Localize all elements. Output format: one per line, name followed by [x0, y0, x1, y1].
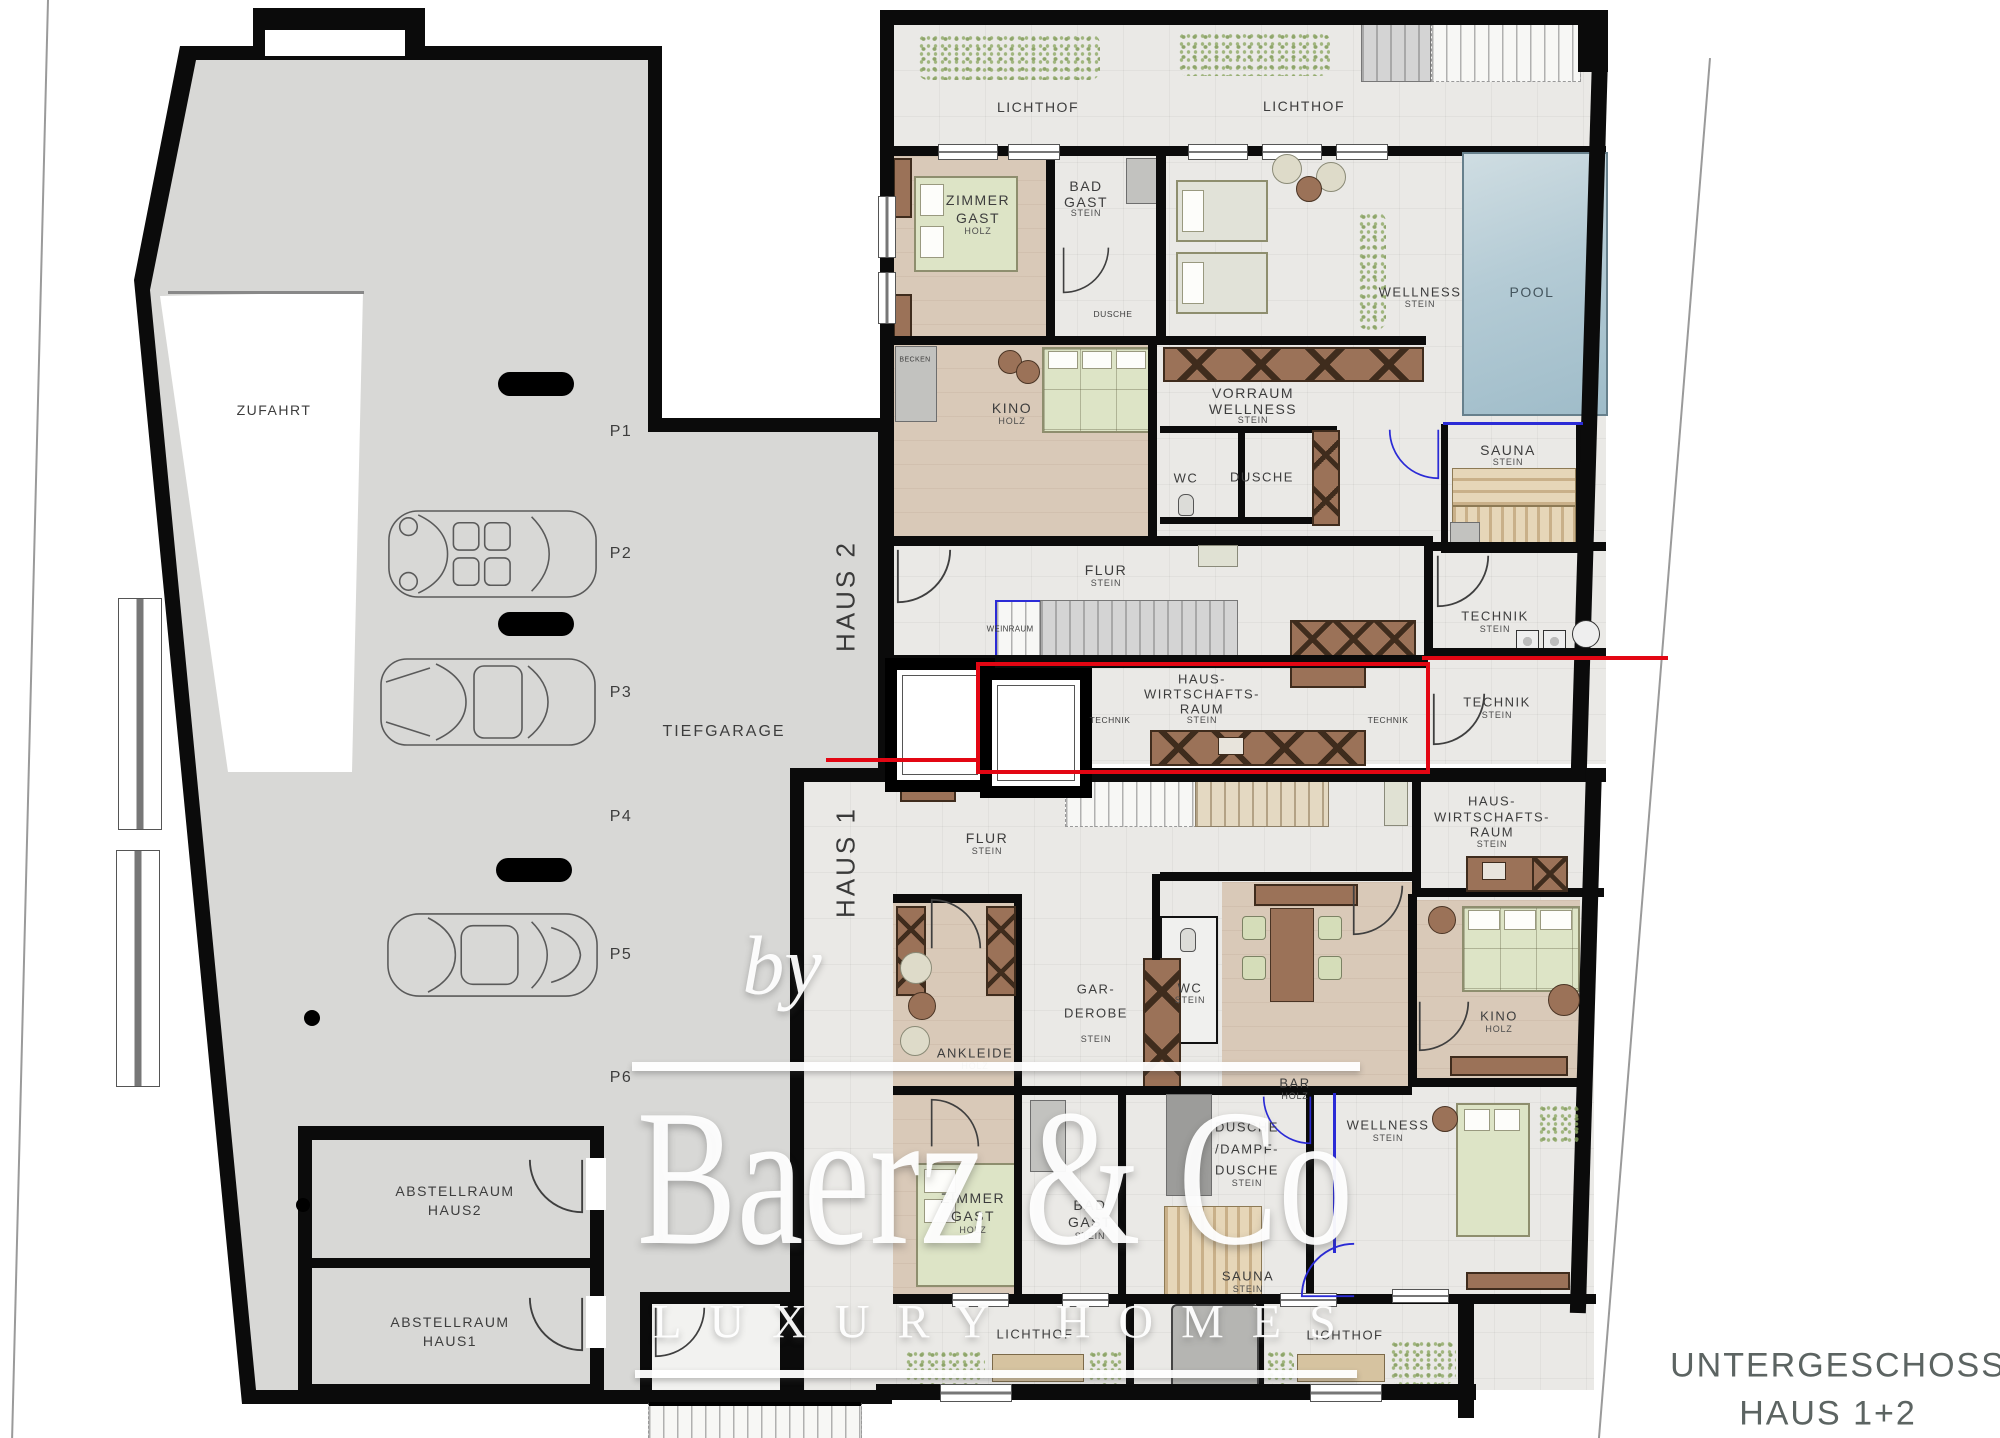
wall: [1156, 336, 1426, 345]
material-label: HOLZ: [964, 226, 991, 236]
window: [1188, 144, 1248, 160]
property-line-left: [11, 0, 48, 1438]
window: [940, 1384, 1012, 1402]
exterior-stairs-dashed: [1431, 18, 1581, 82]
property-line-right: [1598, 58, 1711, 1438]
room-label-wellness-h2: WELLNESS: [1379, 285, 1462, 300]
window: [1310, 1384, 1382, 1402]
stairs: [1040, 600, 1238, 658]
parking-label-p2: P2: [610, 545, 633, 563]
plants: [1178, 32, 1330, 76]
stool: [1432, 1106, 1458, 1132]
room-label-wc-h1: WC: [1178, 981, 1203, 996]
chair: [1272, 154, 1302, 184]
watermark-tagline: LUXURY HOMES: [652, 1295, 1364, 1350]
door-arc: [930, 898, 982, 950]
annotation-red-line: [826, 758, 978, 762]
room-label-vorraum: VORRAUM: [1212, 385, 1294, 401]
plants: [1390, 1340, 1456, 1384]
car-sedan-icon: [372, 652, 604, 752]
wall: [893, 536, 1433, 546]
material-label: STEIN: [1480, 624, 1511, 634]
chair: [1318, 916, 1342, 940]
unit-label-haus2: HAUS 2: [831, 540, 862, 652]
room-label-dusche-klein: DUSCHE: [1094, 309, 1133, 319]
window: [878, 196, 896, 258]
bay-divider: [498, 612, 574, 636]
counter: [1254, 884, 1358, 906]
door-arc-blue: [1388, 428, 1440, 480]
room-label-weinraum: WEINRAUM: [987, 625, 1034, 634]
wall: [1424, 542, 1433, 654]
room-label-flur-h2: FLUR: [1085, 562, 1128, 578]
room-label-becken: BECKEN: [899, 357, 930, 364]
room-label-garderobe: GAR-: [1077, 982, 1116, 997]
parking-label-p6: P6: [610, 1069, 633, 1087]
bed: [1456, 1103, 1530, 1237]
door-arc: [1418, 1000, 1470, 1052]
material-label: STEIN: [1071, 208, 1102, 218]
wall: [1148, 336, 1157, 542]
window: [1392, 1289, 1449, 1303]
bay-divider: [496, 858, 572, 882]
room-label-wc-h2: WC: [1174, 471, 1199, 486]
daybed: [1176, 180, 1268, 242]
floorplan-canvas: ZUFAHRT: [0, 0, 2000, 1438]
door-arc: [528, 1158, 584, 1214]
material-label: STEIN: [1238, 415, 1269, 425]
room-label-hwr-h1-3: RAUM: [1470, 825, 1514, 840]
room-label-abstellraum1-sub: HAUS1: [423, 1333, 477, 1349]
sauna-glass-wall: [1443, 422, 1583, 425]
material-label: STEIN: [1405, 299, 1436, 309]
stool: [908, 992, 936, 1020]
car-sports-icon: [385, 905, 600, 1005]
material-label: HOLZ: [998, 416, 1025, 426]
material-label: STEIN: [972, 846, 1003, 856]
material-label: STEIN: [1081, 1034, 1112, 1044]
stairs: [648, 1402, 862, 1438]
zufahrt-gate: [168, 291, 364, 294]
room-label-ankleide: ANKLEIDE: [937, 1046, 1013, 1061]
wall: [1160, 872, 1412, 881]
daybed: [1176, 252, 1268, 314]
wall: [893, 336, 1156, 345]
hatch-box: [1384, 778, 1408, 826]
room-label-zufahrt: ZUFAHRT: [237, 402, 312, 418]
hatch-box: [1198, 545, 1238, 567]
material-label: STEIN: [1477, 839, 1508, 849]
chair: [900, 952, 932, 984]
plants: [1088, 1350, 1124, 1384]
bar-table: [1270, 908, 1314, 1002]
toilet-icon: [1178, 494, 1194, 516]
boiler: [1572, 620, 1600, 648]
sheet-title-line1: UNTERGESCHOSS: [1670, 1347, 2000, 1386]
wall: [1160, 426, 1337, 433]
room-label-abstellraum2: ABSTELLRAUM: [395, 1183, 514, 1199]
plants: [1358, 212, 1386, 330]
room-label-hwr-h1-2: WIRTSCHAFTS-: [1434, 810, 1550, 825]
plants: [918, 34, 1100, 80]
chair: [1318, 956, 1342, 980]
stool: [1548, 984, 1580, 1016]
room-label-hwr-h1: HAUS-: [1468, 794, 1516, 809]
annotation-red-box: [976, 662, 1430, 774]
door-gap: [586, 1158, 606, 1210]
stairs: [1195, 779, 1329, 827]
door-arc: [896, 548, 952, 604]
sideboard: [1450, 1056, 1568, 1076]
garage-top-niche: [265, 30, 405, 56]
stool: [1016, 360, 1040, 384]
door-gap: [586, 1296, 606, 1348]
wall: [1578, 10, 1608, 72]
parking-label-p1: P1: [610, 423, 633, 441]
room-label-flur-h1: FLUR: [966, 830, 1009, 846]
chair: [1242, 956, 1266, 980]
unit-label-haus1: HAUS 1: [831, 806, 862, 918]
room-label-kino-h2: KINO: [992, 400, 1032, 416]
room-label-technik-h2: TECHNIK: [1461, 609, 1529, 624]
plants: [905, 1350, 985, 1384]
window: [938, 144, 998, 160]
watermark-by: by: [742, 918, 821, 1015]
sheet-title-line2: HAUS 1+2: [1739, 1395, 1917, 1434]
wall: [1046, 152, 1055, 342]
shower-tray: [1126, 158, 1158, 204]
window: [116, 850, 160, 1087]
room-label-zimmer-gast-h2-2: GAST: [956, 210, 1000, 226]
room-label-dusche-h2: DUSCHE: [1230, 470, 1294, 485]
room-label-abstellraum2-sub: HAUS2: [428, 1202, 482, 1218]
room-label-abstellraum1: ABSTELLRAUM: [390, 1314, 509, 1330]
exterior-stairs: [1361, 18, 1431, 82]
door-arc: [1062, 246, 1110, 294]
x-cabinet-tower: [1312, 430, 1340, 526]
sauna-bench: [1452, 468, 1576, 506]
sink: [1482, 862, 1506, 880]
annotation-red-line: [1422, 656, 1668, 660]
door-arc: [1352, 884, 1404, 936]
sideboard: [1466, 1272, 1570, 1290]
stool: [1428, 906, 1456, 934]
toilet-icon: [1180, 928, 1196, 952]
plants: [1266, 1350, 1294, 1384]
room-label-tiefgarage: TIEFGARAGE: [662, 723, 785, 741]
wall: [1412, 768, 1421, 896]
plants: [1538, 1104, 1580, 1146]
room-label-pool: POOL: [1510, 284, 1555, 300]
window: [1008, 144, 1060, 160]
room-label-garderobe-2: DEROBE: [1064, 1006, 1128, 1021]
x-cabinet-row: [1163, 347, 1424, 382]
material-label: STEIN: [1175, 995, 1206, 1005]
door-arc: [1436, 554, 1490, 608]
chair: [900, 1026, 930, 1056]
room-label-technik-h1: TECHNIK: [1463, 695, 1531, 710]
parking-label-p5: P5: [610, 946, 633, 964]
material-label: STEIN: [1493, 457, 1524, 467]
car-convertible-icon: [385, 505, 600, 603]
material-label: STEIN: [1482, 710, 1513, 720]
bay-divider: [498, 372, 574, 396]
room-label-sauna-h2: SAUNA: [1480, 442, 1536, 458]
room-label-wellness-h1: WELLNESS: [1347, 1118, 1430, 1133]
column: [296, 1198, 310, 1212]
wall: [1160, 517, 1337, 524]
x-cabinet: [1532, 856, 1568, 892]
room-label-kino-h1: KINO: [1480, 1009, 1518, 1024]
wall: [880, 10, 1606, 25]
material-label: STEIN: [1091, 578, 1122, 588]
window: [118, 598, 162, 830]
room-label-lichthof-b: LICHTHOF: [1263, 98, 1345, 114]
sofa-bed: [1462, 906, 1580, 992]
material-label: STEIN: [1373, 1133, 1404, 1143]
x-cabinet-row: [1290, 620, 1416, 658]
wall: [1408, 894, 1417, 1082]
room-label-zimmer-gast-h2: ZIMMER: [946, 192, 1010, 208]
room-label-lichthof-a: LICHTHOF: [997, 99, 1079, 115]
x-cabinet-tower: [986, 906, 1016, 996]
parking-label-p3: P3: [610, 684, 633, 702]
wall: [1152, 874, 1160, 960]
sofa-bed: [1042, 347, 1152, 433]
watermark-brand: Baerz & Co: [637, 1066, 1353, 1290]
column: [304, 1010, 320, 1026]
wall: [1441, 424, 1448, 552]
wall: [1408, 1078, 1590, 1087]
chair: [1242, 916, 1266, 940]
wall: [1156, 146, 1166, 344]
parking-label-p4: P4: [610, 808, 633, 826]
material-label: HOLZ: [1485, 1024, 1512, 1034]
watermark-line: [635, 1370, 1357, 1378]
window: [1336, 144, 1388, 160]
room-label-bad-gast-h2: BAD: [1069, 178, 1102, 194]
table: [1296, 176, 1322, 202]
window: [878, 272, 896, 324]
door-arc: [528, 1296, 584, 1352]
